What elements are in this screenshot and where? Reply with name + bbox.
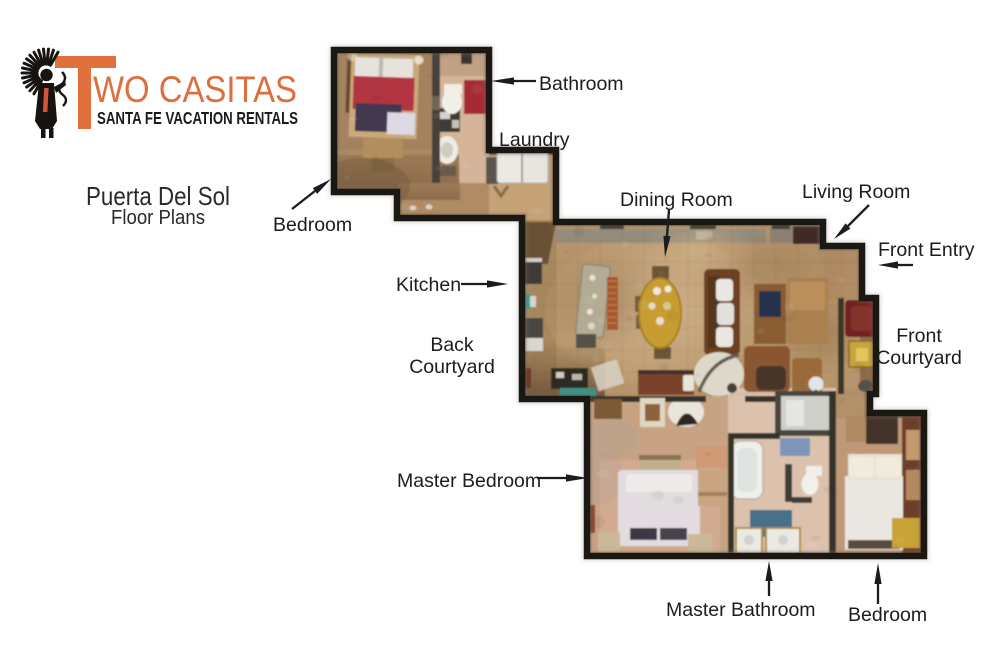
svg-text:Kitchen: Kitchen: [396, 274, 461, 296]
svg-text:Bedroom: Bedroom: [848, 604, 927, 626]
svg-text:Floor Plans: Floor Plans: [111, 207, 205, 229]
svg-text:Back: Back: [430, 334, 474, 356]
svg-text:WO CASITAS: WO CASITAS: [93, 69, 297, 110]
svg-text:Laundry: Laundry: [499, 129, 570, 151]
svg-text:Dining Room: Dining Room: [620, 189, 733, 211]
svg-text:Bedroom: Bedroom: [273, 214, 352, 236]
svg-text:Front Entry: Front Entry: [878, 239, 975, 261]
svg-text:Master Bathroom: Master Bathroom: [666, 599, 816, 621]
svg-text:Living Room: Living Room: [802, 181, 910, 203]
svg-text:SANTA FE VACATION RENTALS: SANTA FE VACATION RENTALS: [97, 108, 298, 128]
svg-text:Master Bedroom: Master Bedroom: [397, 470, 541, 492]
svg-text:Courtyard: Courtyard: [409, 356, 495, 378]
svg-text:Courtyard: Courtyard: [876, 347, 962, 369]
svg-text:Front: Front: [896, 325, 942, 347]
svg-text:Bathroom: Bathroom: [539, 73, 624, 95]
